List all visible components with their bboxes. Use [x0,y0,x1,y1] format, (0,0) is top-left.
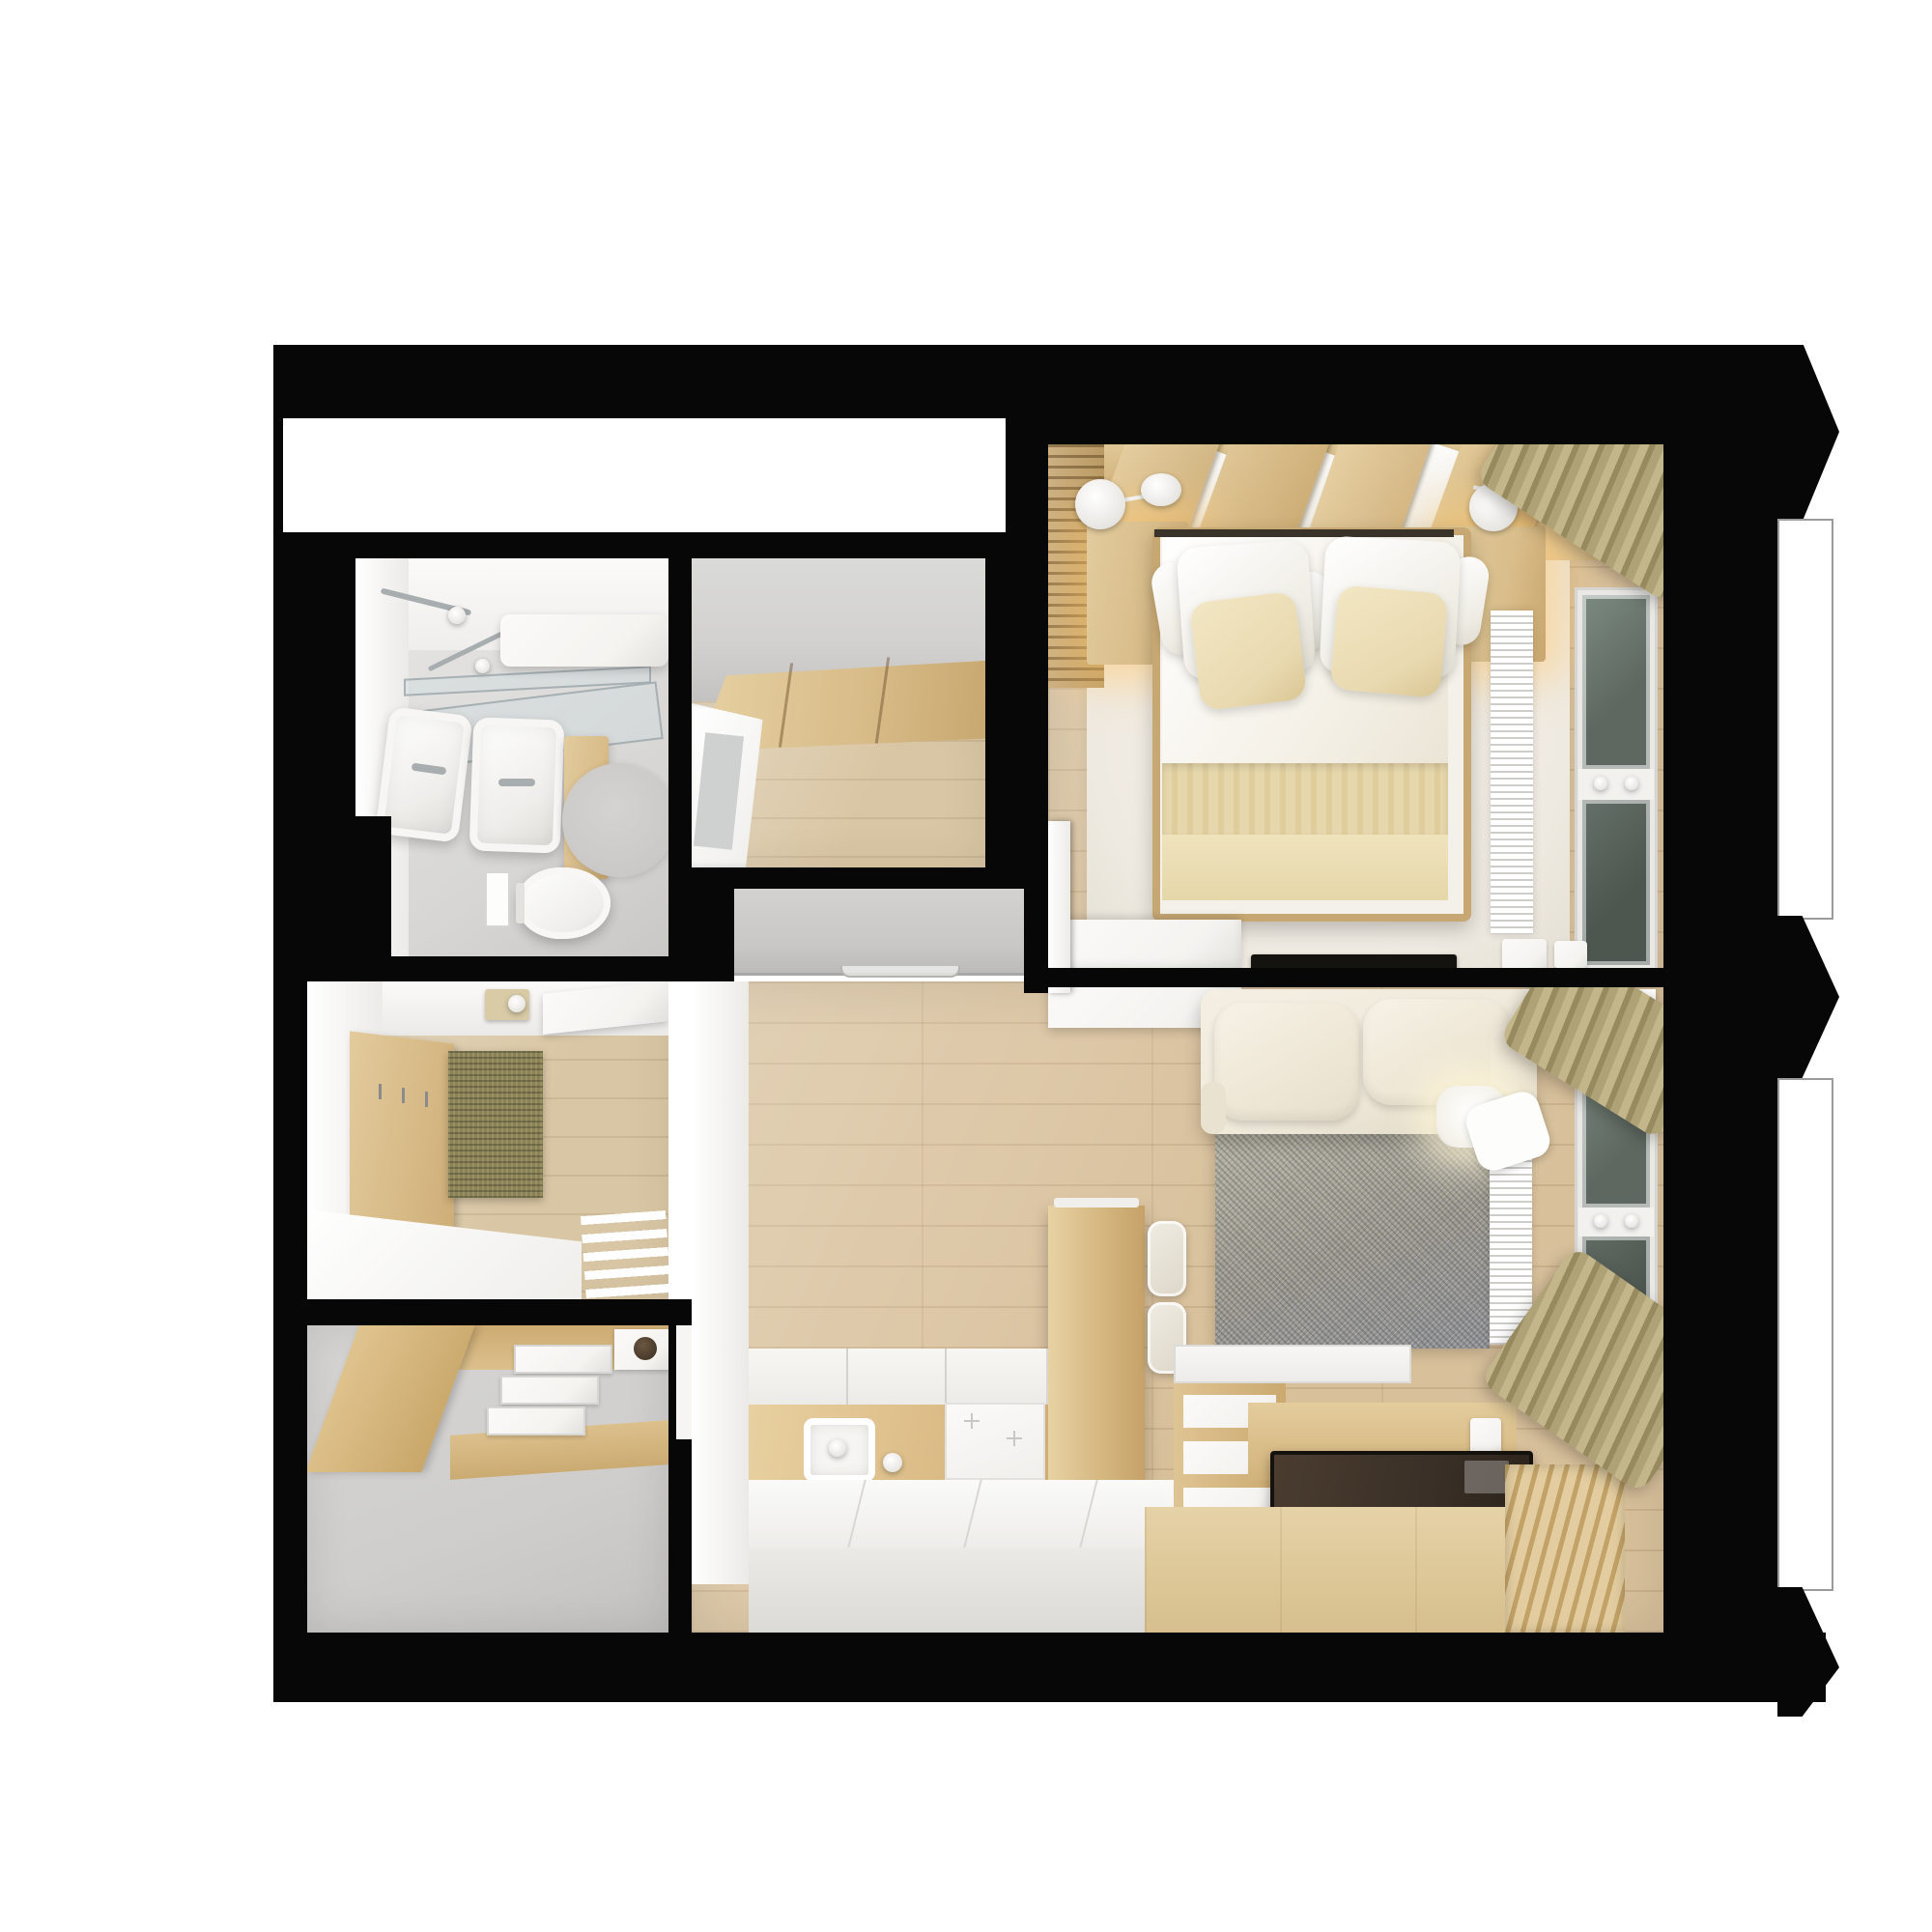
low-table-card [1464,1461,1509,1493]
hob-mark-2-icon [971,1413,973,1429]
bedroom-window-handle2-icon [1625,777,1638,790]
faucet-right-icon [498,779,535,786]
living-rug [1215,1115,1490,1349]
bedroom-window-sash-upper [1582,595,1650,769]
entry-doormat [448,1051,543,1198]
wall-opening-notch [283,418,1006,532]
sofa-armrest-left [1201,1082,1226,1134]
wall-closet-bottom [692,867,1048,889]
sofa-cushion-left [1214,1003,1359,1121]
induction-hob [945,1403,1045,1480]
bed-blanket-band-1 [1162,763,1448,835]
shower-mixer-icon [475,659,490,673]
round-rug [562,763,668,877]
wall-bathroom-notch [355,816,391,956]
storage-door-jamb [676,1325,692,1439]
bed-blanket-band-2 [1162,835,1448,900]
living-window-handle2-icon [1625,1214,1638,1228]
slatted-deck [1505,1464,1625,1633]
room-entry [307,981,668,1299]
pillow-beige-right [1330,584,1449,698]
wall-entry-top [273,956,692,981]
kitchen-faucet-icon [883,1453,902,1472]
living-window-mullion [1578,1207,1654,1236]
bathtub [500,614,668,667]
balcony-outline-top [1777,519,1833,920]
kitchen-island-top [749,1480,1176,1548]
toilet-hinge-icon [516,883,525,923]
wall-right-band [1663,345,1777,1633]
bedroom-window-handle-icon [1594,777,1607,790]
wall-entry-storage [273,1299,692,1325]
storage-bowl-icon [634,1337,657,1360]
entry-intercom-knob-icon [508,995,526,1012]
flush-plate [485,871,510,927]
room-bathroom [355,558,668,956]
bedroom-radiator-grille [1491,611,1533,934]
bedroom-dresser [1051,920,1241,973]
stool-1 [1148,1221,1186,1296]
coat-hook-2-icon [402,1088,405,1103]
floor-plan-scene [0,0,1932,1932]
section-arrow-top-icon [1777,345,1839,519]
bedroom-window [1575,587,1658,973]
storage-box-3 [487,1406,585,1435]
kitchen-back-counter [749,1349,1048,1405]
section-arrow-bottom-icon [1777,1587,1839,1717]
platform-deck [1145,1507,1550,1633]
sconce-left-shade-icon [1141,473,1181,506]
room-storage [307,1325,668,1633]
wall-top-right [1006,345,1663,444]
room-bedroom [1048,444,1663,973]
dining-table [1048,1206,1145,1484]
living-west-wall [692,981,749,1584]
dining-table-frame [1054,1198,1139,1207]
wall-bath-closet [668,558,692,981]
shower-head-icon [448,607,466,624]
room-closet [692,558,985,867]
bed-headboard-line [1154,529,1454,537]
balcony-outline-bottom [1777,1078,1833,1591]
bedroom-shelf-items [1502,939,1547,970]
coat-hook-3-icon [425,1092,428,1107]
pillow-beige-left [1189,591,1308,712]
bedroom-window-sash-lower [1582,800,1650,965]
wall-bedroom-living [1024,968,1663,987]
wall-bottom [273,1633,1826,1702]
storage-box-2 [500,1376,599,1405]
coat-hook-1-icon [379,1084,382,1099]
wall-left-lower [273,956,307,1702]
sconce-left-icon [1075,479,1125,529]
kitchen-front-face [749,1548,1176,1633]
living-window-handle-icon [1594,1214,1607,1228]
platform-top-row [1174,1345,1411,1383]
hallway-cabinet [729,889,1036,976]
entry-drying-rack [581,1210,668,1299]
bedroom-window-mullion [1578,769,1654,800]
kitchen-back-seam-2 [945,1349,947,1405]
storage-box-1 [514,1345,612,1374]
hallway-cabinet-handle-icon [840,966,960,978]
hob-mark-4-icon [1013,1431,1015,1446]
section-arrow-middle-icon [1777,916,1839,1078]
entry-coat-panel [350,1031,454,1235]
bedroom-shelf-items-2 [1554,941,1587,968]
toilet [518,867,611,939]
kitchen-back-seam-1 [846,1349,848,1405]
room-living [692,981,1663,1633]
wall-left-bathroom [273,558,355,956]
sink-drain-icon [829,1439,846,1457]
